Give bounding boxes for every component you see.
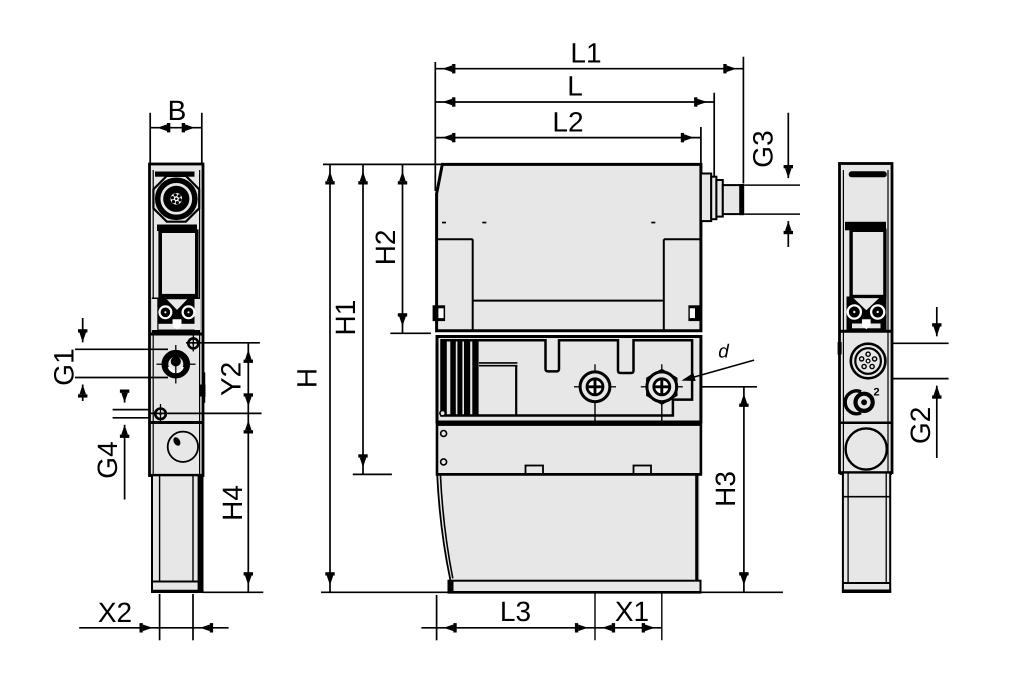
svg-text:H3: H3 [710,471,741,507]
svg-text:2: 2 [873,387,879,399]
svg-text:d: d [718,342,730,363]
svg-text:L2: L2 [552,107,583,138]
svg-text:H1: H1 [330,300,361,336]
svg-text:H2: H2 [370,230,401,266]
svg-text:G3: G3 [748,130,779,167]
svg-text:X1: X1 [615,596,649,627]
svg-text:B: B [168,95,187,126]
svg-text:X2: X2 [98,597,132,628]
svg-text:G4: G4 [92,441,123,478]
svg-text:L3: L3 [500,596,531,627]
svg-text:L1: L1 [570,38,601,69]
svg-text:H4: H4 [217,485,248,521]
svg-text:G2: G2 [905,407,936,444]
svg-text:L: L [567,71,583,102]
svg-text:H: H [292,368,323,388]
svg-text:Y2: Y2 [216,362,247,396]
svg-text:G1: G1 [49,348,80,385]
